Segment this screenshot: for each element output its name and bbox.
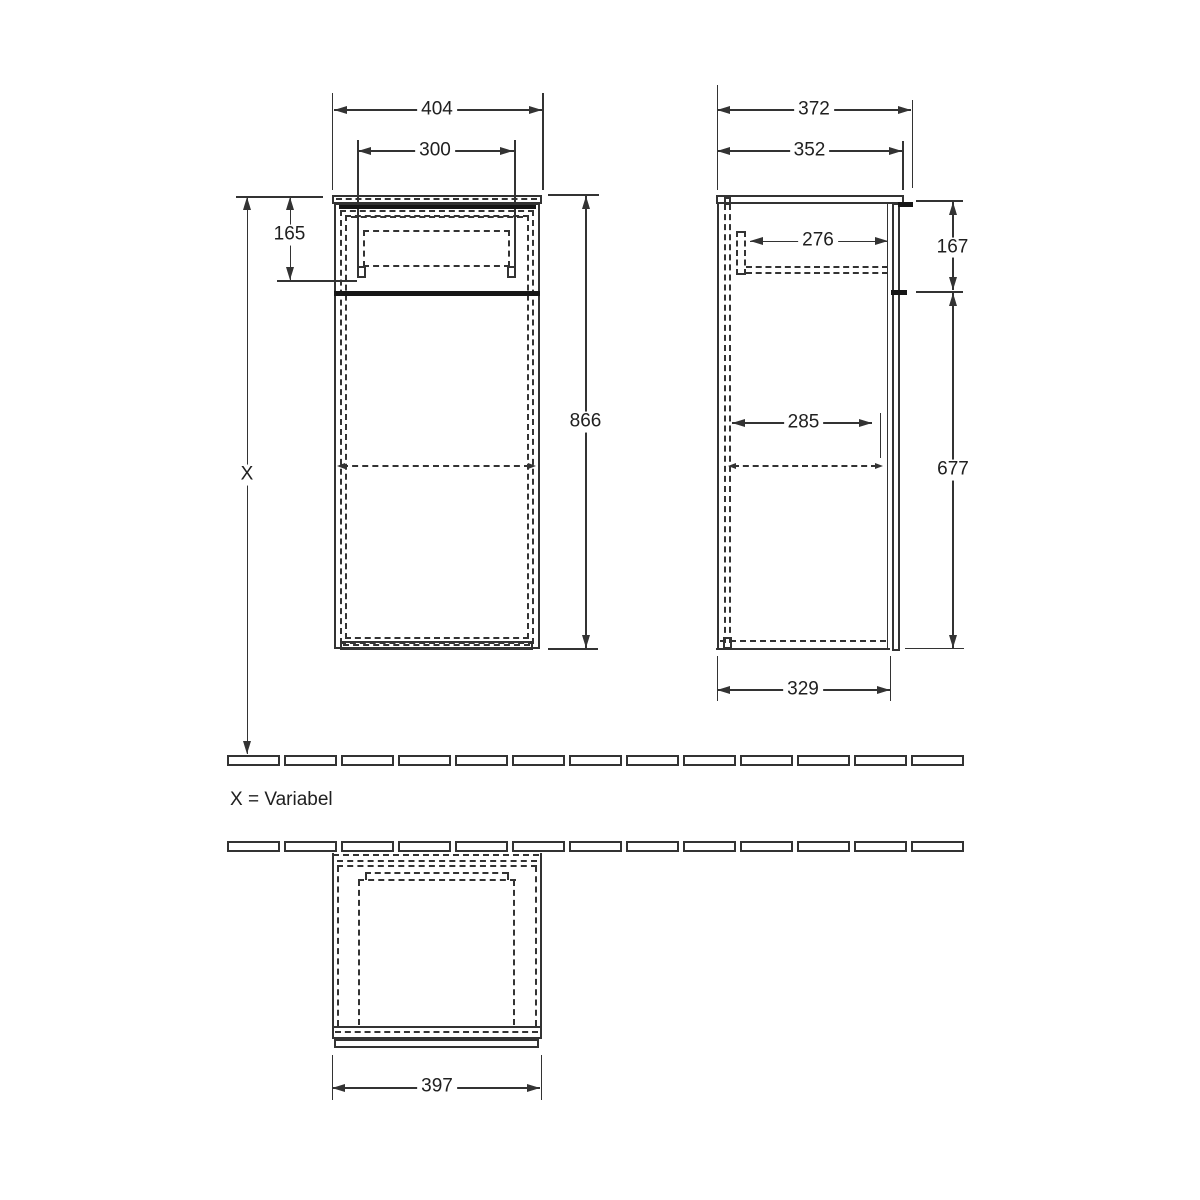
front-ext-404-right: [542, 93, 544, 190]
front-top-plate-dashed: [336, 198, 537, 200]
top-view-inner-dashed-a2: [337, 865, 537, 867]
dim-label-side-inner-depth: 276: [798, 231, 838, 252]
side-arrow-329-left: [717, 686, 730, 694]
side-arrow-167-top: [949, 202, 957, 215]
side-ext-329-left: [717, 656, 719, 701]
front-ext-866-top: [548, 194, 599, 196]
top-view-inner-side-a-right: [535, 866, 537, 1026]
side-ext-352-right: [902, 141, 904, 190]
floor-hatch-segment: [854, 755, 907, 766]
side-arrow-677-bottom: [949, 635, 957, 648]
dim-label-front-drawer-zone-height: 165: [270, 225, 310, 246]
floor-hatch-segment: [455, 755, 508, 766]
top-ext-397-right: [541, 1055, 543, 1100]
floor-hatch-segment: [284, 755, 337, 766]
floor-hatch-segment: [398, 755, 451, 766]
wall-hatch-segment: [797, 841, 850, 852]
top-view-inner-dashed-b1: [365, 872, 508, 874]
side-bottom-dashed: [720, 640, 886, 642]
front-arrow-165-top: [286, 197, 294, 210]
front-drawer-handle: [339, 205, 536, 210]
floor-hatch-segment: [911, 755, 964, 766]
wall-hatch-segment: [227, 841, 280, 852]
wall-hatch-segment: [569, 841, 622, 852]
side-arrow-285-left: [732, 419, 745, 427]
front-shelf-tip-left: [337, 463, 345, 469]
wall-hatch-segment: [626, 841, 679, 852]
side-arrow-276-left: [750, 237, 763, 245]
side-ext-285-right: [880, 413, 882, 458]
top-view-right-edge: [540, 853, 542, 1028]
side-arrow-352-left: [717, 147, 730, 155]
side-door-panel: [892, 203, 900, 651]
top-view-inner-dashed-b2: [358, 879, 516, 881]
top-view-inner-side-a-left: [337, 866, 339, 1026]
front-arrow-x-top: [243, 197, 251, 210]
wall-hatch-segment: [683, 841, 736, 852]
dim-label-side-top-depth: 352: [790, 141, 830, 162]
top-view-plinth-band: [334, 1039, 539, 1048]
side-shelf-tip-left: [728, 463, 736, 469]
floor-hatch-segment: [740, 755, 793, 766]
side-drawer-bottom-dashed-1: [746, 266, 888, 268]
top-arrow-397-right: [527, 1084, 540, 1092]
dim-label-side-shelf-depth: 285: [784, 412, 824, 433]
top-view-left-edge: [332, 853, 334, 1028]
wall-hatch-segment: [341, 841, 394, 852]
front-arrow-866-top: [582, 196, 590, 209]
side-arrow-285-right: [859, 419, 872, 427]
dim-label-side-overall-depth: 372: [794, 100, 834, 121]
top-view-back-edge-dashed: [333, 854, 539, 856]
top-view-notch-b-right: [507, 872, 509, 880]
front-arrow-300-left: [358, 147, 371, 155]
side-handle-profile: [898, 202, 913, 207]
side-arrow-352-right: [889, 147, 902, 155]
dim-label-top-outer-width: 397: [417, 1077, 457, 1098]
front-drawer-slide-right: [507, 266, 516, 278]
front-arrow-300-right: [500, 147, 513, 155]
side-back-dashed-2: [729, 204, 731, 643]
side-separator-profile: [891, 290, 907, 295]
side-ext-372-right: [912, 100, 914, 188]
side-arrow-167-bottom: [949, 277, 957, 290]
front-shelf-dashed: [342, 465, 530, 467]
side-bottom-line: [716, 648, 890, 651]
side-arrow-677-top: [949, 293, 957, 306]
front-arrow-404-left: [334, 106, 347, 114]
top-view-notch-b-left: [365, 872, 367, 880]
floor-hatch-segment: [797, 755, 850, 766]
wall-hatch-segment: [911, 841, 964, 852]
front-bottom-panel-dashed: [343, 644, 530, 646]
front-arrow-866-bottom: [582, 635, 590, 648]
top-arrow-397-left: [332, 1084, 345, 1092]
dim-label-front-carcass-height: 866: [566, 412, 606, 433]
variable-height-note: X = Variabel: [230, 789, 333, 811]
floor-hatch-segment: [341, 755, 394, 766]
side-back-panel-line: [717, 203, 719, 650]
top-view-front-band-dashed: [335, 1031, 538, 1033]
front-drawer-door-separator: [334, 291, 540, 296]
front-arrow-404-right: [529, 106, 542, 114]
side-arrow-372-right: [898, 106, 911, 114]
side-drawer-bottom-dashed-2: [746, 272, 888, 274]
side-ext-left: [717, 85, 719, 190]
side-arrow-329-right: [877, 686, 890, 694]
side-shelf-dashed: [733, 465, 877, 467]
front-arrow-x-bottom: [243, 741, 251, 754]
wall-hatch-segment: [740, 841, 793, 852]
front-arrow-165-bottom: [286, 267, 294, 280]
dim-label-side-top-section-height: 167: [933, 237, 973, 258]
front-door-dashed-inner: [345, 215, 529, 639]
top-ext-397-left: [332, 1055, 334, 1100]
wall-hatch-line: [227, 841, 974, 852]
side-arrow-276-right: [875, 237, 888, 245]
wall-hatch-segment: [284, 841, 337, 852]
wall-hatch-segment: [398, 841, 451, 852]
top-view-inner-dashed-a1: [337, 860, 537, 862]
wall-hatch-segment: [512, 841, 565, 852]
technical-drawing: 404 300 X 165 866 372 352: [0, 0, 1200, 1200]
dim-label-front-install-height: X: [237, 465, 258, 486]
side-carcass-front-line: [887, 203, 889, 648]
front-shelf-tip-right: [528, 463, 536, 469]
floor-hatch-segment: [227, 755, 280, 766]
side-back-dashed-1: [724, 204, 726, 643]
wall-hatch-segment: [854, 841, 907, 852]
wall-hatch-segment: [455, 841, 508, 852]
side-arrow-372-left: [717, 106, 730, 114]
front-drawer-slide-left: [357, 266, 366, 278]
dim-label-side-base-depth: 329: [783, 680, 823, 701]
dim-label-front-inner-width: 300: [415, 141, 455, 162]
front-drawer-box-dashed: [363, 230, 510, 267]
floor-hatch-segment: [512, 755, 565, 766]
side-shelf-tip-right: [875, 463, 883, 469]
floor-hatch-segment: [626, 755, 679, 766]
top-view-inner-side-b-left: [358, 880, 360, 1025]
dim-label-front-outer-width: 404: [417, 100, 457, 121]
dim-label-side-lower-section-height: 677: [933, 460, 973, 481]
floor-hatch-segment: [569, 755, 622, 766]
top-view-inner-side-b-right: [513, 880, 515, 1025]
floor-hatch-line: [227, 755, 974, 766]
side-drawer-runner-dashed: [736, 231, 746, 275]
front-under-handle-dashed: [351, 216, 523, 218]
floor-hatch-segment: [683, 755, 736, 766]
side-ext-677-bottom: [905, 648, 964, 650]
front-ext-866-bottom: [548, 648, 598, 650]
side-ext-329-right: [890, 656, 892, 701]
side-top-plate: [716, 195, 904, 204]
